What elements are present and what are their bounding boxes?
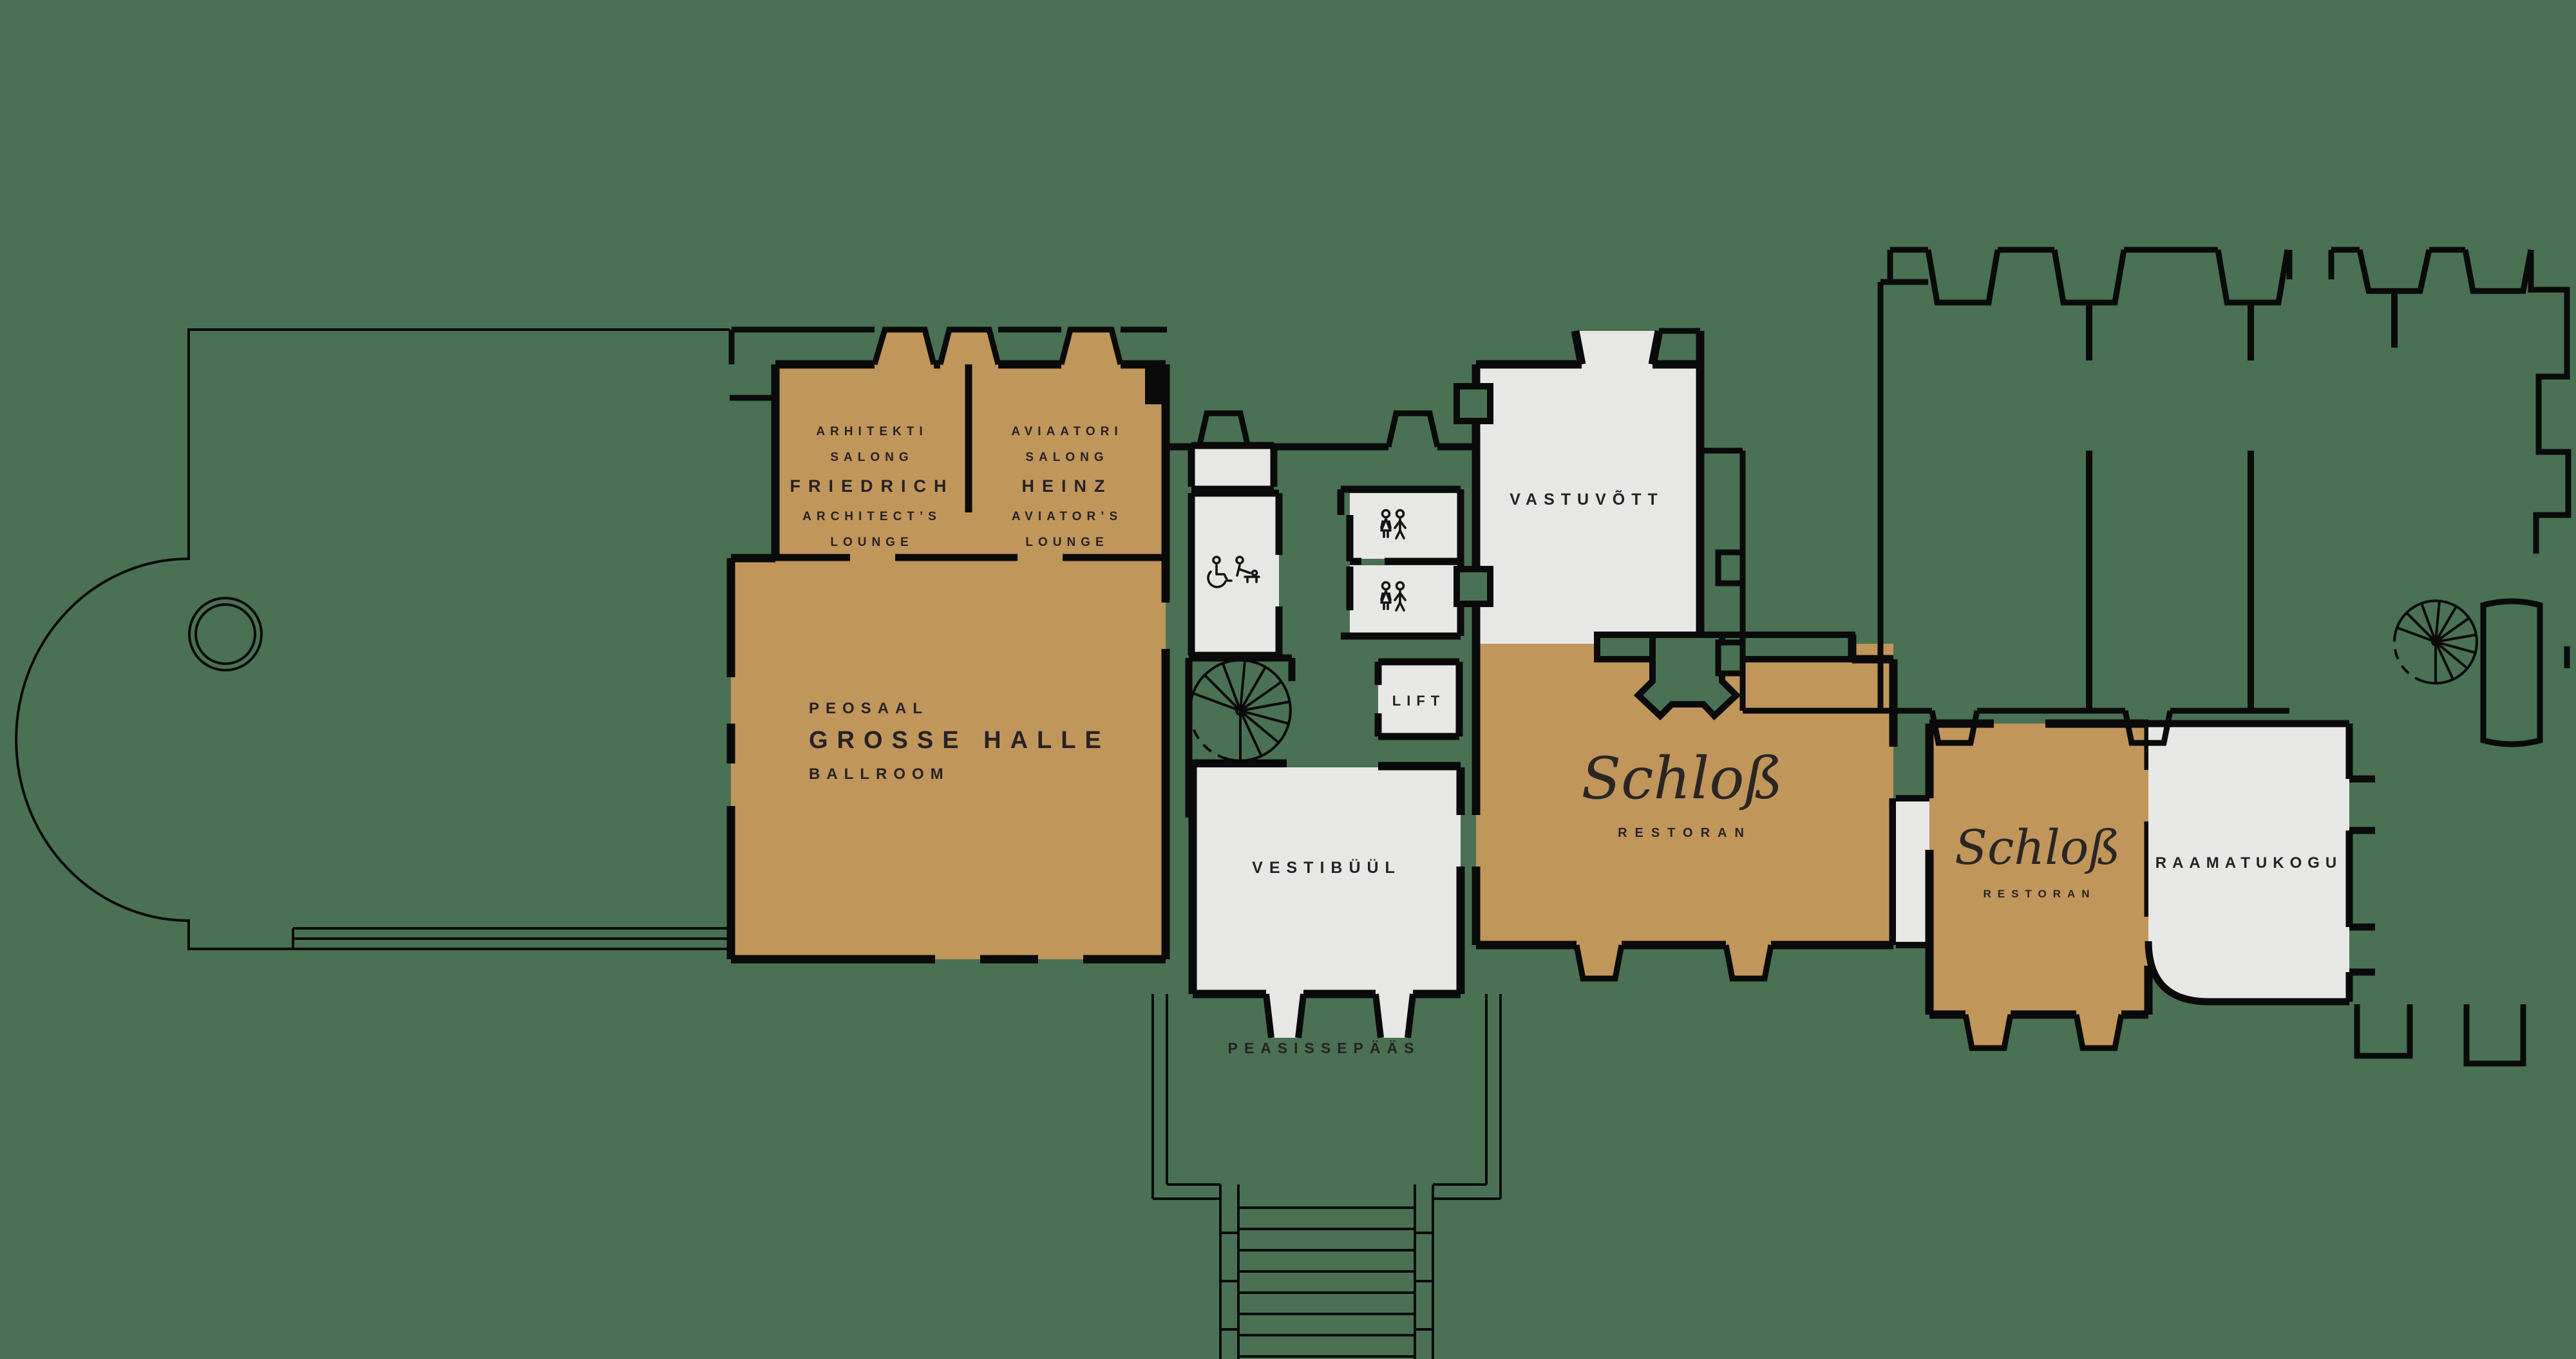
room-vestibule: VESTIBÜÜL [1193, 766, 1461, 1038]
aviators-lounge-label-5: LOUNGE [1025, 536, 1108, 549]
room-restaurant-main: Schloß RESTORAN [1476, 635, 1893, 979]
ballroom-label-2: GROSSE HALLE [809, 727, 1110, 754]
library-label: RAAMATUKOGU [2155, 854, 2343, 872]
architects-lounge-label-3: FRIEDRICH [790, 476, 954, 496]
architects-lounge-label-4: ARCHITECT’S [802, 510, 942, 523]
aviators-lounge-label-2: SALONG [1025, 451, 1108, 464]
corridor-between-restaurants [1896, 798, 1929, 945]
floor-plan: ARHITEKTI SALONG FRIEDRICH ARCHITECT’S L… [0, 0, 2576, 1359]
reception-label: VASTUVÕTT [1510, 489, 1664, 509]
ballroom-label-1: PEOSAAL [809, 700, 929, 717]
wall-pier [1718, 552, 1743, 583]
architects-lounge-label-5: LOUNGE [830, 536, 913, 549]
ballroom-lounge-block: ARHITEKTI SALONG FRIEDRICH ARCHITECT’S L… [731, 330, 1167, 959]
restaurant-main-sub: RESTORAN [1618, 826, 1752, 840]
aviators-lounge-label-1: AVIAATORI [1011, 425, 1122, 438]
wall-pier [1718, 642, 1743, 673]
room-restaurant-small: Schloß RESTORAN [1929, 724, 2148, 1048]
room-lift: LIFT [1378, 662, 1459, 736]
aviators-lounge-label-3: HEINZ [1022, 476, 1113, 496]
room-reception: VASTUVÕTT [1457, 331, 1700, 644]
restaurant-small-logo: Schloß [1955, 820, 2120, 876]
room-library: RAAMATUKOGU [2148, 724, 2375, 1002]
main-entrance-label: PEASISSEPÄÄS [1228, 1040, 1421, 1056]
floor-plan-page: ARHITEKTI SALONG FRIEDRICH ARCHITECT’S L… [0, 0, 2576, 1359]
plan-background [0, 0, 2576, 1359]
vestibule-label: VESTIBÜÜL [1252, 858, 1401, 877]
architects-lounge-label-1: ARHITEKTI [816, 425, 927, 438]
ballroom-label-3: BALLROOM [809, 765, 950, 783]
room-wc-bottom [1350, 565, 1461, 633]
aviators-lounge-label-4: AVIATOR’S [1012, 510, 1122, 523]
restaurant-main-logo: Schloß [1581, 745, 1783, 812]
room-accessible-wc [1191, 445, 1279, 655]
room-wc-top [1350, 493, 1461, 559]
wall-pier [1457, 569, 1490, 604]
wall-pier [1457, 386, 1490, 421]
wall-niche [1145, 364, 1164, 404]
architects-lounge-label-2: SALONG [830, 451, 913, 464]
restaurant-small-sub: RESTORAN [1983, 888, 2096, 900]
lift-label: LIFT [1392, 693, 1445, 709]
